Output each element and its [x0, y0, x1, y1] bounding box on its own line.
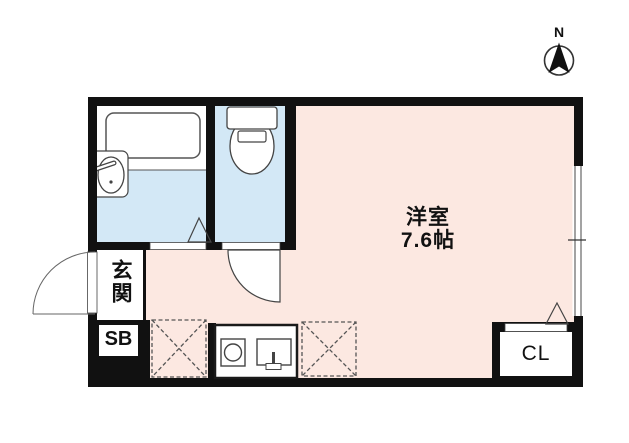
- shoe-box-label: SB: [97, 322, 140, 357]
- wall-top: [88, 97, 583, 106]
- toilet-doorway: [222, 243, 280, 250]
- kitchen: [215, 325, 297, 378]
- floor-plan-canvas: N 洋室 7.6帖 玄関 SB CL: [0, 0, 629, 443]
- toilet-seat-hinge: [238, 131, 266, 142]
- wall-right-upper: [574, 97, 583, 166]
- wall-stub-center: [206, 242, 222, 250]
- wall-stub-right: [280, 242, 296, 250]
- closet-doorway: [505, 324, 567, 332]
- basin-drain-dot: [109, 180, 112, 183]
- main-room-name: 洋室: [328, 206, 528, 229]
- compass: [545, 43, 574, 76]
- stove-burner-icon: [225, 344, 242, 361]
- toilet-fixture: [227, 107, 277, 174]
- toilet-tank-icon: [227, 107, 277, 129]
- entrance-label: 玄関: [96, 250, 144, 314]
- wall-left-upper: [88, 97, 97, 253]
- closet-label: CL: [500, 332, 572, 376]
- appliance-space-right: [302, 322, 356, 376]
- wall-bath-toilet-divider: [206, 105, 215, 250]
- bathroom-doorway: [150, 243, 206, 250]
- wall-toilet-room-divider: [285, 105, 296, 250]
- compass-north-label: N: [545, 24, 573, 40]
- main-room-area: 7.6帖: [328, 229, 528, 252]
- wall-bathroom-bottom: [88, 242, 150, 250]
- kitchen-faucet-base: [266, 364, 281, 370]
- main-room-label: 洋室 7.6帖: [328, 206, 528, 252]
- floor-plan-drawing: [0, 0, 629, 443]
- entrance-door-arc: [33, 252, 95, 314]
